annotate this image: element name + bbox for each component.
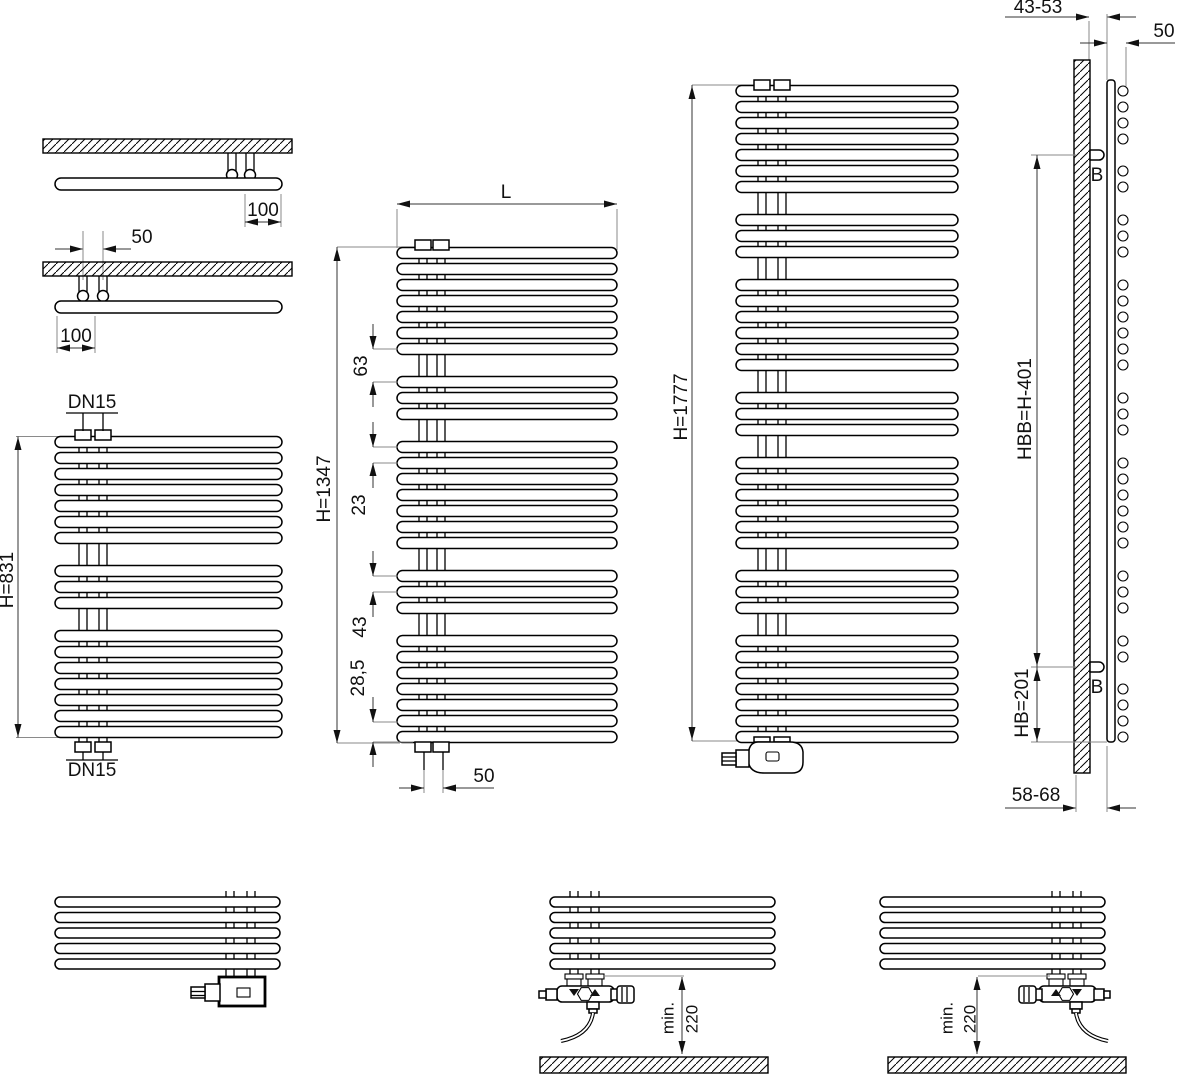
radiator-tube bbox=[397, 603, 617, 614]
radiator-tube bbox=[397, 264, 617, 275]
radiator-tube bbox=[55, 897, 280, 907]
installation-view-valve-center bbox=[539, 891, 775, 1073]
radiator-tube bbox=[736, 668, 958, 679]
radiator-tube bbox=[397, 490, 617, 501]
radiator-tube bbox=[880, 944, 1105, 954]
valve-port bbox=[1094, 989, 1104, 1000]
dimension-arrow bbox=[1094, 40, 1107, 47]
radiator-tube bbox=[55, 566, 282, 577]
tube-end bbox=[1118, 684, 1128, 694]
radiator-tube bbox=[55, 533, 282, 544]
tube-end bbox=[1118, 344, 1128, 354]
radiator-tube bbox=[736, 312, 958, 323]
tube-end bbox=[1118, 118, 1128, 128]
tube-end bbox=[1118, 296, 1128, 306]
radiator-tube bbox=[550, 944, 775, 954]
dim-label-220-right: 220 bbox=[960, 1005, 979, 1033]
technical-drawing-page: 100 50 100 DN15 H=831 DN15 L H=1347 63 2… bbox=[0, 0, 1181, 1075]
radiator-technical-drawing: 100 50 100 DN15 H=831 DN15 L H=1347 63 2… bbox=[0, 0, 1181, 1075]
dim-label-43-53: 43-53 bbox=[1014, 0, 1063, 18]
radiator-tube bbox=[736, 344, 958, 355]
radiator-tube bbox=[397, 652, 617, 663]
tube-end bbox=[1118, 215, 1128, 225]
thermostat-head bbox=[617, 986, 634, 1003]
dim-label-220-center: 220 bbox=[682, 1005, 701, 1033]
tube-end bbox=[1118, 490, 1128, 500]
valve-side-port bbox=[736, 750, 749, 767]
radiator-tube bbox=[397, 522, 617, 533]
dimension-arrow bbox=[334, 248, 341, 261]
dimension-arrow bbox=[1126, 40, 1139, 47]
radiator-tube bbox=[55, 485, 282, 496]
element-fitting bbox=[191, 987, 205, 998]
dimension-arrow bbox=[689, 86, 696, 99]
tube-end bbox=[1118, 182, 1128, 192]
radiator-tube bbox=[736, 716, 958, 727]
dim-label-50-pipes: 50 bbox=[131, 227, 152, 248]
radiator-tube bbox=[397, 506, 617, 517]
dimension-arrow bbox=[1076, 14, 1089, 21]
radiator-tube bbox=[736, 409, 958, 420]
radiator-tube bbox=[880, 928, 1105, 938]
shape bbox=[1049, 979, 1063, 986]
radiator-tube bbox=[55, 679, 282, 690]
radiator-tube bbox=[55, 959, 280, 969]
radiator-tube bbox=[736, 700, 958, 711]
dimension-arrow bbox=[1034, 728, 1041, 741]
dimension-arrow bbox=[334, 730, 341, 743]
tube-end bbox=[1118, 587, 1128, 597]
dimension-arrow bbox=[1034, 156, 1041, 169]
radiator-tube bbox=[55, 631, 282, 642]
pipe-cap bbox=[95, 742, 111, 752]
radiator-tube bbox=[397, 296, 617, 307]
pipe-cap bbox=[75, 742, 91, 752]
valve-hex-nut bbox=[1059, 988, 1074, 1001]
radiator-tube bbox=[736, 134, 958, 145]
valve-port bbox=[546, 989, 557, 1000]
radiator-tube bbox=[55, 453, 282, 464]
shape bbox=[539, 991, 546, 998]
radiator-tube bbox=[736, 490, 958, 501]
shape bbox=[1068, 974, 1086, 979]
dimension-arrow bbox=[1107, 14, 1120, 21]
dim-label-100-left: 100 bbox=[60, 326, 92, 347]
radiator-tube bbox=[55, 944, 280, 954]
radiator-tube bbox=[397, 280, 617, 291]
radiator-tube bbox=[397, 458, 617, 469]
dimension-arrow bbox=[370, 463, 377, 476]
radiator-tube bbox=[880, 913, 1105, 923]
radiator-tube bbox=[736, 684, 958, 695]
tube-end bbox=[1118, 86, 1128, 96]
dim-label-58-68: 58-68 bbox=[1012, 785, 1061, 806]
radiator-tube bbox=[736, 102, 958, 113]
tube-end bbox=[1118, 328, 1128, 338]
installation-view-valve-right bbox=[880, 891, 1126, 1073]
tube-end bbox=[1118, 134, 1128, 144]
radiator-tube bbox=[397, 668, 617, 679]
wall-bracket-bottom bbox=[1090, 662, 1104, 672]
valve-hex-nut bbox=[578, 988, 593, 1001]
dimension-arrow bbox=[370, 592, 377, 605]
dimension-arrow bbox=[370, 382, 377, 395]
pipe-cap bbox=[95, 430, 111, 440]
dimension-arrow bbox=[689, 727, 696, 740]
radiator-tube bbox=[736, 603, 958, 614]
tube-end bbox=[1118, 425, 1128, 435]
pipe-cap bbox=[754, 80, 770, 90]
pipe-cap bbox=[415, 240, 431, 250]
radiator-tube bbox=[55, 663, 282, 674]
radiator-tube bbox=[397, 393, 617, 404]
radiator-tube bbox=[55, 469, 282, 480]
floor-section bbox=[888, 1057, 1126, 1073]
radiator-tube bbox=[736, 506, 958, 517]
radiator-tube bbox=[736, 215, 958, 226]
tube-end bbox=[1118, 538, 1128, 548]
radiator-tube bbox=[55, 711, 282, 722]
dimension-arrow bbox=[370, 434, 377, 447]
collector-pipe-side bbox=[1107, 80, 1115, 742]
tube-end bbox=[1118, 474, 1128, 484]
tube-end bbox=[1118, 280, 1128, 290]
installation-view-electric bbox=[55, 891, 280, 1006]
radiator-tube bbox=[55, 647, 282, 658]
radiator-tube bbox=[550, 913, 775, 923]
radiator-tube bbox=[736, 360, 958, 371]
shape bbox=[588, 979, 602, 986]
shape bbox=[1070, 979, 1084, 986]
tube-end bbox=[1118, 716, 1128, 726]
radiator-tube bbox=[736, 328, 958, 339]
dimension-arrow bbox=[1063, 805, 1076, 812]
tube-end bbox=[1118, 409, 1128, 419]
tube-end bbox=[1118, 231, 1128, 241]
pipe-elbow bbox=[78, 291, 89, 302]
radiator-front-view-h1777 bbox=[689, 80, 959, 773]
radiator-tube bbox=[736, 280, 958, 291]
dimension-arrow bbox=[443, 785, 456, 792]
dim-label-hb201: HB=201 bbox=[1012, 668, 1033, 737]
wall-bracket-top bbox=[1090, 150, 1104, 160]
dimension-arrow bbox=[679, 1041, 686, 1054]
radiator-tube bbox=[736, 118, 958, 129]
radiator-tube bbox=[880, 897, 1105, 907]
tube-end bbox=[1118, 360, 1128, 370]
radiator-tube bbox=[736, 652, 958, 663]
dimension-arrow bbox=[370, 709, 377, 722]
dimension-arrow bbox=[370, 742, 377, 755]
element-gland bbox=[205, 984, 220, 1001]
shape bbox=[589, 1009, 597, 1013]
radiator-tube bbox=[55, 913, 280, 923]
radiator-tube bbox=[736, 571, 958, 582]
radiator-tube bbox=[55, 598, 282, 609]
dimension-arrow bbox=[15, 724, 22, 737]
radiator-tube bbox=[397, 587, 617, 598]
radiator-tube bbox=[736, 247, 958, 258]
valve-block-window bbox=[766, 752, 779, 761]
radiator-tube bbox=[736, 393, 958, 404]
radiator-tube bbox=[55, 582, 282, 593]
radiator-tube bbox=[736, 636, 958, 647]
tube-end bbox=[1118, 312, 1128, 322]
radiator-tube bbox=[880, 959, 1105, 969]
thermostat-head bbox=[1019, 986, 1036, 1003]
cable-gland bbox=[1070, 1002, 1082, 1009]
label-bracket-bottom: B bbox=[1091, 677, 1104, 698]
tube-end bbox=[1118, 636, 1128, 646]
dim-label-h1347: H=1347 bbox=[314, 455, 335, 522]
dimension-arrow bbox=[974, 977, 981, 990]
pipe-elbow bbox=[98, 291, 109, 302]
dim-label-h1777: H=1777 bbox=[671, 373, 692, 440]
ceiling-section bbox=[43, 262, 292, 276]
valve-fitting bbox=[722, 753, 736, 765]
tube-end bbox=[1118, 506, 1128, 516]
shape bbox=[565, 974, 583, 979]
radiator-tube bbox=[397, 344, 617, 355]
radiator-tube bbox=[736, 166, 958, 177]
dimension-arrow bbox=[70, 246, 83, 253]
tube-end bbox=[1118, 166, 1128, 176]
radiator-tube bbox=[736, 425, 958, 436]
radiator-tube bbox=[736, 182, 958, 193]
radiator-tube bbox=[550, 928, 775, 938]
shape bbox=[1104, 991, 1110, 998]
dimension-arrow bbox=[370, 563, 377, 576]
radiator-tube bbox=[550, 897, 775, 907]
radiator-tube bbox=[397, 312, 617, 323]
radiator-tube bbox=[397, 442, 617, 453]
radiator-tube bbox=[736, 231, 958, 242]
radiator-tube bbox=[55, 178, 282, 190]
radiator-tube bbox=[55, 301, 282, 313]
dimension-arrow bbox=[1107, 805, 1120, 812]
dimension-arrow bbox=[1034, 668, 1041, 681]
dimension-arrow bbox=[103, 246, 116, 253]
dim-label-50-bottom: 50 bbox=[473, 766, 494, 787]
radiator-tube bbox=[397, 700, 617, 711]
label-dn15-bottom: DN15 bbox=[68, 760, 117, 781]
dim-label-L: L bbox=[501, 182, 512, 203]
element-indicator bbox=[237, 988, 250, 997]
dim-label-h831: H=831 bbox=[0, 552, 18, 609]
shape bbox=[567, 979, 581, 986]
wall-section bbox=[1074, 60, 1090, 773]
radiator-tube bbox=[397, 571, 617, 582]
label-dn15-top: DN15 bbox=[68, 392, 117, 413]
dim-label-43: 43 bbox=[350, 616, 371, 637]
radiator-tube bbox=[736, 522, 958, 533]
radiator-tube bbox=[736, 296, 958, 307]
dim-label-63: 63 bbox=[351, 355, 372, 376]
dim-label-50-side: 50 bbox=[1153, 21, 1174, 42]
shape bbox=[1072, 1009, 1080, 1013]
tube-end bbox=[1118, 652, 1128, 662]
radiator-tube bbox=[55, 501, 282, 512]
dimension-arrow bbox=[411, 785, 424, 792]
tube-end bbox=[1118, 700, 1128, 710]
dimension-arrow bbox=[397, 201, 410, 208]
tube-end bbox=[1118, 522, 1128, 532]
tube-end bbox=[1118, 247, 1128, 257]
radiator-tube bbox=[397, 474, 617, 485]
dim-label-28-5: 28,5 bbox=[348, 660, 369, 697]
dim-label-min-right: min. bbox=[937, 1002, 956, 1034]
dimension-arrow bbox=[604, 201, 617, 208]
tube-end bbox=[1118, 571, 1128, 581]
radiator-tube bbox=[397, 684, 617, 695]
tube-end bbox=[1118, 393, 1128, 403]
radiator-tube bbox=[55, 517, 282, 528]
dimension-arrow bbox=[1034, 653, 1041, 666]
radiator-tube bbox=[397, 409, 617, 420]
radiator-tube bbox=[736, 458, 958, 469]
pipe-cap bbox=[75, 430, 91, 440]
radiator-tube bbox=[397, 328, 617, 339]
tube-end bbox=[1118, 603, 1128, 613]
label-bracket-top: B bbox=[1091, 165, 1104, 186]
pipe-cap bbox=[774, 80, 790, 90]
dim-label-hbb: HBB=H-401 bbox=[1015, 358, 1036, 460]
radiator-tube bbox=[397, 636, 617, 647]
radiator-tube bbox=[736, 474, 958, 485]
shape bbox=[586, 974, 604, 979]
dimension-arrow bbox=[15, 437, 22, 450]
pipe-cap bbox=[433, 742, 449, 752]
dimension-arrow bbox=[974, 1041, 981, 1054]
dim-label-min-center: min. bbox=[658, 1002, 677, 1034]
dim-label-100-right: 100 bbox=[247, 200, 279, 221]
radiator-tube bbox=[397, 732, 617, 743]
tube-end bbox=[1118, 732, 1128, 742]
radiator-tube bbox=[55, 695, 282, 706]
radiator-tube bbox=[55, 928, 280, 938]
floor-section bbox=[540, 1057, 768, 1073]
radiator-tube bbox=[397, 716, 617, 727]
ceiling-section bbox=[43, 139, 292, 153]
radiator-tube bbox=[736, 587, 958, 598]
radiator-tube bbox=[397, 538, 617, 549]
radiator-tube bbox=[736, 150, 958, 161]
radiator-front-view-h831 bbox=[15, 413, 283, 760]
cable-gland bbox=[587, 1002, 599, 1009]
radiator-front-view-h1347 bbox=[334, 201, 618, 794]
pipe-cap bbox=[433, 240, 449, 250]
pipe-cap bbox=[415, 742, 431, 752]
dim-label-23: 23 bbox=[349, 494, 370, 515]
radiator-tube bbox=[550, 959, 775, 969]
dimension-arrow bbox=[679, 977, 686, 990]
tube-end bbox=[1118, 458, 1128, 468]
radiator-tube bbox=[736, 538, 958, 549]
tube-end bbox=[1118, 102, 1128, 112]
radiator-tube bbox=[397, 377, 617, 388]
dimension-arrow bbox=[370, 336, 377, 349]
radiator-tube bbox=[55, 727, 282, 738]
